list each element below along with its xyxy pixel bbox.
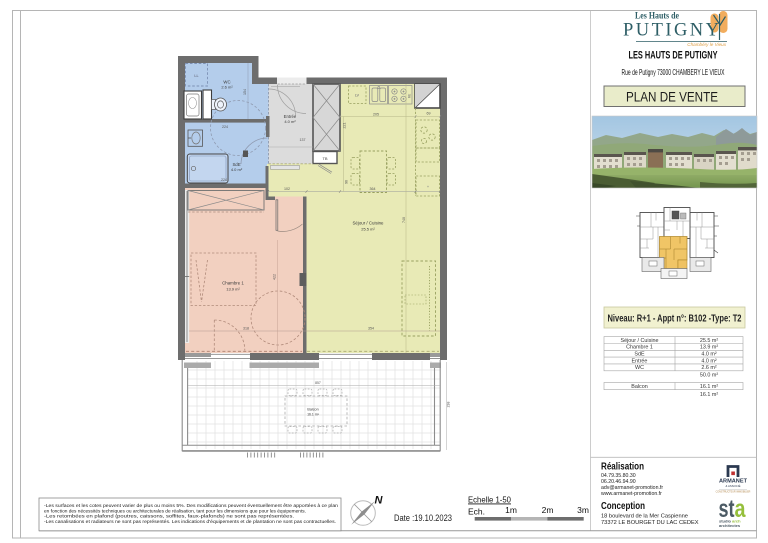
svg-text:LES HAUTS DE PUTIGNY: LES HAUTS DE PUTIGNY [629, 50, 718, 62]
svg-text:RE: RE [408, 93, 412, 98]
svg-text:102: 102 [284, 187, 290, 191]
svg-text:LV: LV [355, 94, 360, 98]
svg-text:Rue de Putigny 73000 CHAMBERY: Rue de Putigny 73000 CHAMBERY LE VIEUX [622, 67, 725, 77]
svg-text:221: 221 [343, 123, 347, 129]
svg-text:CONSTRUCTEUR IMMOBILIER: CONSTRUCTEUR IMMOBILIER [716, 491, 751, 494]
svg-text:4.0 m²: 4.0 m² [284, 119, 296, 124]
svg-text:16.1 m²: 16.1 m² [700, 392, 718, 398]
svg-text:205: 205 [373, 113, 379, 117]
svg-text:Ech.: Ech. [468, 507, 485, 517]
svg-text:2m: 2m [542, 505, 554, 515]
svg-text:WC: WC [635, 365, 644, 371]
svg-text:69: 69 [427, 112, 431, 116]
svg-text:Entrée: Entrée [632, 358, 648, 364]
svg-text:13.9 m²: 13.9 m² [700, 345, 718, 351]
svg-text:www.armanet-promotion.fr: www.armanet-promotion.fr [601, 491, 662, 497]
svg-text:18 boulevard de la Mer Caspien: 18 boulevard de la Mer Caspienne [601, 514, 688, 520]
svg-text:50.0 m²: 50.0 m² [700, 373, 718, 379]
svg-text:Niveau: R+1 - Appt n°: B102 -: Niveau: R+1 - Appt n°: B102 -Type: T2 [608, 314, 742, 325]
svg-text:4.0 m²: 4.0 m² [701, 358, 716, 364]
svg-text:354: 354 [368, 327, 374, 331]
svg-text:224: 224 [221, 178, 227, 182]
svg-text:Date :19.10.2023: Date :19.10.2023 [394, 513, 452, 524]
svg-text:3m: 3m [577, 505, 589, 515]
svg-text:Balcon: Balcon [307, 408, 318, 412]
svg-text:Séjour / Cuisine: Séjour / Cuisine [353, 221, 385, 226]
svg-text:Echelle 1-50: Echelle 1-50 [468, 495, 511, 505]
svg-text:224: 224 [222, 125, 228, 129]
svg-text:422: 422 [273, 274, 277, 280]
svg-text:TB: TB [322, 156, 327, 161]
svg-text:4.0 m²: 4.0 m² [701, 352, 716, 358]
svg-text:2.6 m²: 2.6 m² [221, 85, 233, 90]
svg-text:-Les surfaces et les cotes peu: -Les surfaces et les cotes peuvent varie… [44, 503, 338, 508]
svg-text:Chambre 1: Chambre 1 [222, 281, 244, 286]
svg-text:Balcon: Balcon [631, 384, 647, 390]
svg-text:-Les retombées en plafond (pou: -Les retombées en plafond (poutres, cais… [44, 514, 294, 519]
svg-text:N: N [375, 495, 384, 507]
svg-text:+: + [427, 185, 429, 189]
svg-text:96: 96 [345, 180, 349, 184]
svg-text:740: 740 [402, 217, 406, 223]
svg-text:en fonction des nécessités tec: en fonction des nécessités techniques ou… [44, 508, 306, 513]
svg-text:-Les canalisations et radiateu: -Les canalisations et radiateurs ne sont… [44, 519, 336, 524]
svg-text:Réalisation: Réalisation [601, 461, 644, 473]
svg-text:16.1 m²: 16.1 m² [307, 413, 320, 417]
svg-text:4.0 m²: 4.0 m² [231, 167, 243, 172]
svg-text:PLAN DE VENTE: PLAN DE VENTE [626, 90, 718, 105]
svg-text:238: 238 [447, 402, 451, 408]
svg-text:137: 137 [300, 138, 306, 142]
svg-text:1m: 1m [505, 505, 517, 515]
svg-text:16.1 m²: 16.1 m² [700, 384, 718, 390]
svg-text:25.5 m²: 25.5 m² [361, 227, 375, 232]
svg-text:318: 318 [243, 327, 249, 331]
svg-text:LL: LL [194, 74, 198, 78]
svg-text:25.5 m²: 25.5 m² [700, 338, 718, 344]
svg-text:Séjour / Cuisine: Séjour / Cuisine [620, 338, 658, 344]
svg-text:13.9 m²: 13.9 m² [226, 287, 240, 292]
svg-text:73372 LE BOURGET DU LAC CEDEX: 73372 LE BOURGET DU LAC CEDEX [601, 520, 699, 526]
svg-text:364: 364 [370, 187, 376, 191]
svg-text:2.6 m²: 2.6 m² [701, 365, 716, 371]
svg-text:Conception: Conception [601, 500, 645, 512]
svg-text:154: 154 [243, 89, 247, 95]
svg-text:SdE: SdE [634, 352, 645, 358]
svg-text:Chambéry le Vieux: Chambéry le Vieux [687, 42, 726, 47]
svg-text:857: 857 [315, 381, 321, 385]
svg-text:architectes: architectes [719, 523, 741, 528]
svg-text:& ASSOCIÉ: & ASSOCIÉ [726, 483, 741, 488]
svg-text:Chambre 1: Chambre 1 [626, 345, 653, 351]
